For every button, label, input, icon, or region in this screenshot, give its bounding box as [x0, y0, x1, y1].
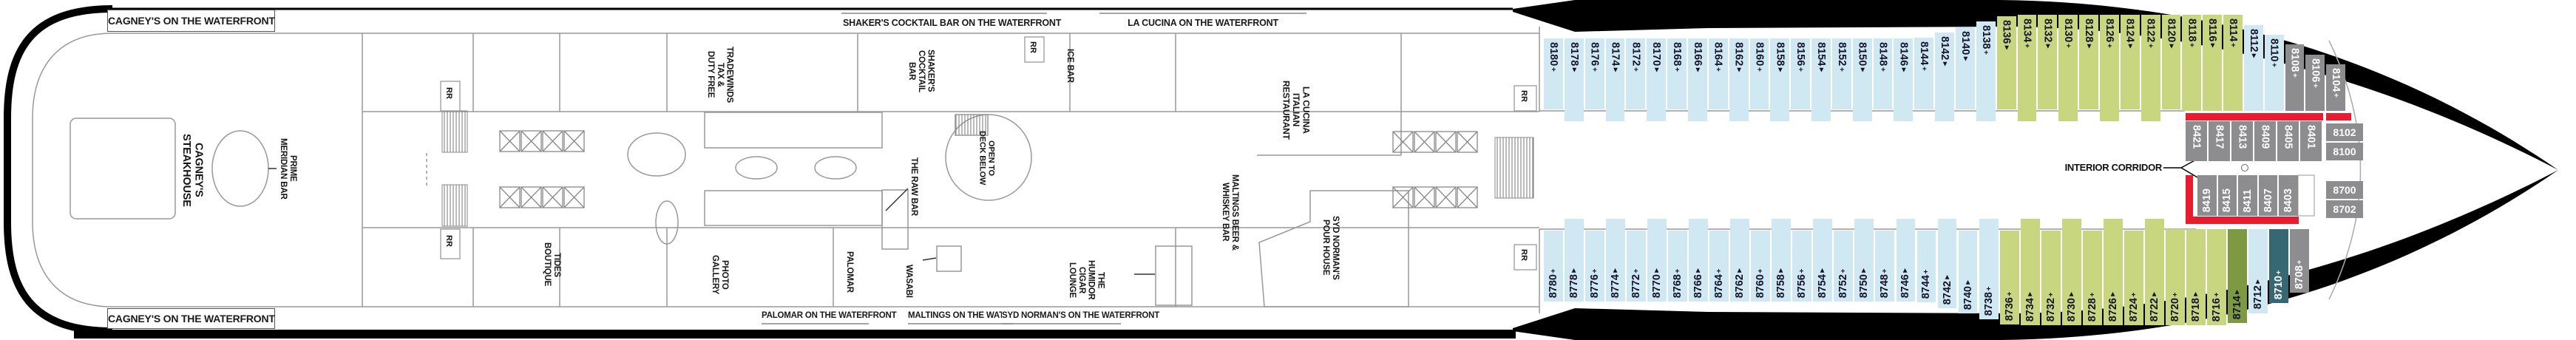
cabin-8762: 8762▼ [1730, 219, 1749, 302]
venue-wasabi: WASABI [904, 255, 913, 307]
cabin-8734: 8734▼ [2021, 219, 2040, 325]
cabin-8770: 8770▼ [1647, 219, 1667, 302]
cabin-8712: 8712▼ [2248, 229, 2268, 313]
venue-shakers-cocktail-bar: SHAKER'S COCKTAIL BAR [906, 37, 935, 105]
cabin-8714: 8714▼ [2228, 229, 2247, 323]
cabin-8417: 8417 [2209, 121, 2230, 161]
cabin-8174: 8174▼ [1606, 38, 1625, 121]
restroom-label: RR [1519, 249, 1528, 261]
cabin-8756: 8756+ [1792, 231, 1811, 302]
cabin-8726: 8726▼ [2104, 219, 2123, 325]
venue-la-cucina-restaurant: LA CUCINA ITALIAN RESTAURANT [1281, 71, 1310, 149]
restroom-label: RR [1519, 90, 1528, 102]
cabin-8136: 8136▼ [1997, 16, 2016, 109]
cabin-8728: 8728+ [2083, 231, 2102, 325]
cabin-8162: 8162▼ [1729, 38, 1749, 121]
venue-maltings-beer-whiskey-bar: MALTINGS BEER & WHISKEY BAR [1220, 169, 1239, 256]
cabin-8124: 8124▼ [2121, 15, 2140, 109]
cabin-8170: 8170▼ [1647, 38, 1666, 121]
interior-corridor-label: INTERIOR CORRIDOR [2047, 162, 2162, 173]
cabin-8116: 8116▼ [2203, 15, 2222, 111]
cabin-8415: 8415 [2218, 175, 2237, 216]
restroom-label: RR [444, 235, 453, 247]
venue-cagneys-steakhouse: CAGNEY'S STEAKHOUSE [180, 109, 204, 231]
venue-tradewinds: TRADEWINDS TAX & DUTY FREE [705, 37, 734, 112]
cabin-8722: 8722▼ [2145, 219, 2164, 325]
cabin-8421: 8421 [2186, 121, 2207, 161]
cabin-8730: 8730▼ [2062, 219, 2081, 325]
cabin-8716: 8716+ [2207, 229, 2226, 325]
venue-syd-normans-pour-house: SYD NORMAN'S POUR HOUSE [1321, 204, 1340, 291]
cabin-8772: 8772+ [1627, 231, 1646, 302]
deck-plan: CAGNEY'S ON THE WATERFRONT SHAKER'S COCK… [0, 0, 2576, 340]
banner-cagneys-top: CAGNEY'S ON THE WATERFRONT [107, 10, 275, 32]
cabin-8744: 8744+ [1917, 231, 1936, 302]
cabin-8738: 8738+ [1979, 219, 1999, 319]
cabin-8776: 8776+ [1585, 231, 1604, 302]
venue-the-raw-bar: THE RAW BAR [909, 150, 918, 222]
cabin-8114: 8114+ [2223, 15, 2243, 111]
cabin-8158: 8158▼ [1770, 38, 1789, 121]
cabin-8413: 8413 [2231, 121, 2253, 161]
venue-ice-bar: ICE BAR [1065, 41, 1074, 90]
cabin-8106: 8106+ [2305, 55, 2325, 111]
cabin-8768: 8768+ [1668, 231, 1687, 302]
cabin-8104: 8104+ [2326, 64, 2345, 111]
venue-tides-boutique: TIDES BOUTIQUE [542, 231, 561, 299]
cabin-8140: 8140▼ [1956, 27, 1975, 109]
restroom-label: RR [444, 87, 453, 99]
cabin-8100: 8100 [2326, 143, 2363, 160]
cabin-8146: 8146▼ [1894, 38, 1913, 121]
cabin-8700: 8700 [2326, 181, 2363, 199]
cabin-8154: 8154▼ [1811, 38, 1831, 121]
cabin-8409: 8409 [2254, 121, 2276, 161]
cabin-8118: 8118+ [2182, 15, 2201, 111]
cabin-8702: 8702 [2326, 200, 2363, 218]
cabin-8724: 8724+ [2124, 231, 2143, 325]
cabin-8720: 8720+ [2166, 229, 2185, 325]
cabin-8138: 8138+ [1976, 21, 1996, 121]
cabin-8746: 8746▼ [1897, 219, 1916, 302]
cabin-8156: 8156+ [1791, 38, 1810, 109]
cabin-8750: 8750▼ [1854, 219, 1874, 302]
cabin-8148: 8148+ [1874, 38, 1893, 109]
cabin-8760: 8760+ [1751, 231, 1770, 302]
banner-sydnormans-bottom: SYD NORMAN'S ON THE WATERFRONT [1002, 309, 1121, 322]
cabin-8108: 8108+ [2285, 44, 2305, 111]
cabin-8126: 8126+ [2100, 15, 2119, 121]
cabin-8774: 8774▼ [1606, 219, 1625, 302]
cabin-8710: 8710+ [2269, 229, 2288, 303]
banner-cagneys-bottom: CAGNEY'S ON THE WATERFRONT [107, 308, 275, 329]
cabin-8110: 8110+ [2265, 35, 2284, 111]
banner-palomar-bottom: PALOMAR ON THE WATERFRONT [762, 309, 869, 322]
venue-palomar: PALOMAR [844, 242, 854, 302]
cabin-8160: 8160+ [1750, 38, 1769, 109]
cabin-8419: 8419 [2197, 175, 2217, 216]
cabin-8740: 8740▼ [1959, 231, 1978, 313]
cabin-8112: 8112▼ [2244, 25, 2263, 112]
cabin-8411: 8411 [2238, 175, 2257, 216]
cabin-8718: 8718▼ [2186, 229, 2206, 325]
cabin-8166: 8166▼ [1688, 38, 1707, 121]
cabin-8778: 8778▼ [1565, 219, 1584, 302]
cabin-8132: 8132▼ [2038, 15, 2057, 109]
cabin-8144: 8144+ [1914, 38, 1933, 109]
cabin-8742: 8742▼ [1938, 219, 1957, 308]
cabin-8766: 8766▼ [1689, 219, 1708, 302]
cabin-8752: 8752+ [1834, 231, 1853, 302]
cabin-8764: 8764+ [1709, 231, 1729, 302]
cabin-8407: 8407 [2259, 175, 2278, 216]
cabin-8134: 8134+ [2018, 15, 2037, 121]
banner-maltings-bottom: MALTINGS ON THE WATERFRONT [908, 309, 1013, 322]
cabin-8180: 8180+ [1544, 38, 1563, 109]
cabin-8732: 8732+ [2041, 231, 2061, 325]
cabin-8128: 8128▼ [2079, 15, 2098, 109]
cabin-8122: 8122+ [2141, 15, 2160, 121]
cabin-8708: 8708+ [2290, 229, 2309, 293]
cabin-8403: 8403 [2279, 175, 2298, 216]
venue-photo-gallery: PHOTO GALLERY [710, 244, 729, 306]
cabin-8152: 8152+ [1832, 38, 1851, 109]
cabin-8405: 8405 [2277, 121, 2299, 161]
cabin-8172: 8172+ [1626, 38, 1645, 109]
cabin-8102: 8102 [2326, 123, 2363, 141]
banner-lacucina-top: LA CUCINA ON THE WATERFRONT [1099, 16, 1306, 30]
cabin-8401: 8401 [2300, 121, 2322, 161]
cabin-8754: 8754▼ [1813, 219, 1832, 302]
cabin-8120: 8120▼ [2162, 15, 2181, 109]
cabin-8780: 8780+ [1544, 231, 1563, 302]
cabin-8758: 8758▼ [1772, 219, 1791, 302]
venue-open-to-deck-below: OPEN TO DECK BELOW [977, 127, 996, 189]
cabin-rows: 8180+8178▼8176+8174▼8172+8170▼8168+8166▼… [0, 0, 2576, 340]
venue-prime-meridian-bar: PRIME MERIDIAN BAR [278, 123, 297, 214]
cabin-8142: 8142▼ [1935, 33, 1954, 121]
banner-shakers-top: SHAKER'S COCKTAIL BAR ON THE WATERFRONT [843, 16, 1045, 30]
cabin-8130: 8130+ [2058, 15, 2078, 121]
restroom-label: RR [1028, 41, 1037, 53]
cabin-8150: 8150▼ [1853, 38, 1872, 121]
cabin-8748: 8748+ [1875, 231, 1894, 302]
cabin-8164: 8164+ [1709, 38, 1728, 109]
cabin-8178: 8178▼ [1565, 38, 1584, 121]
venue-humidor-cigar-lounge: THE HUMIDOR CIGAR LOUNGE [1067, 250, 1105, 310]
cabin-8168: 8168+ [1667, 38, 1687, 109]
cabin-8176: 8176+ [1585, 38, 1604, 109]
cabin-8736: 8736+ [2000, 231, 2019, 324]
